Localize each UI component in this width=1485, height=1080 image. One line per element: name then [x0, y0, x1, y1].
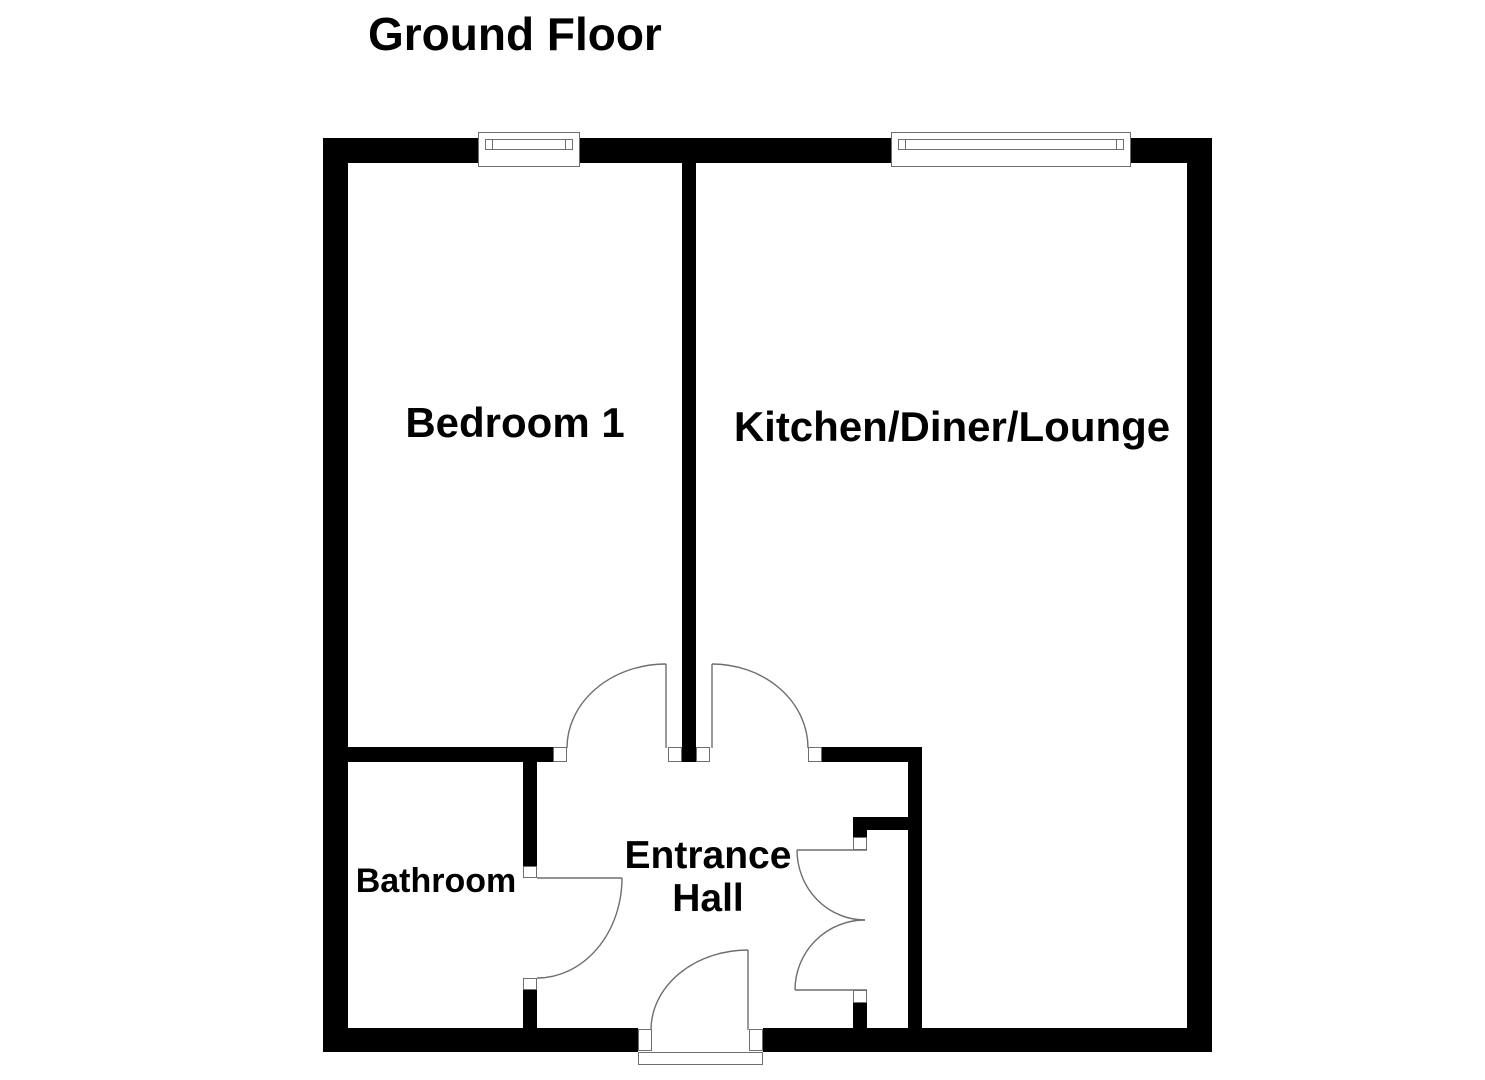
kitchen-door: [712, 664, 808, 748]
kitchen-door-arc: [712, 664, 808, 748]
entrance-door: [651, 950, 748, 1030]
bathroom-door: [537, 878, 622, 978]
entrance-door-arc: [651, 950, 748, 1030]
room-label-entrance-hall-line1: Entrance: [625, 835, 792, 878]
bedroom-door: [567, 664, 666, 748]
closet-door-top-arc: [797, 850, 865, 920]
bathroom-door-arc: [537, 878, 622, 978]
closet-door-bottom-arc: [795, 920, 865, 990]
room-label-kitchen-diner-lounge: Kitchen/Diner/Lounge: [734, 404, 1170, 450]
room-label-entrance-hall: Entrance Hall: [625, 835, 792, 921]
closet-double-door-bottom: [795, 920, 867, 990]
room-label-bathroom: Bathroom: [356, 863, 517, 900]
bedroom-door-arc: [567, 664, 666, 748]
room-label-entrance-hall-line2: Hall: [625, 878, 792, 921]
closet-double-door-top: [797, 850, 867, 920]
floorplan-canvas: Ground Floor: [0, 0, 1485, 1080]
room-label-bedroom-1: Bedroom 1: [405, 400, 624, 446]
